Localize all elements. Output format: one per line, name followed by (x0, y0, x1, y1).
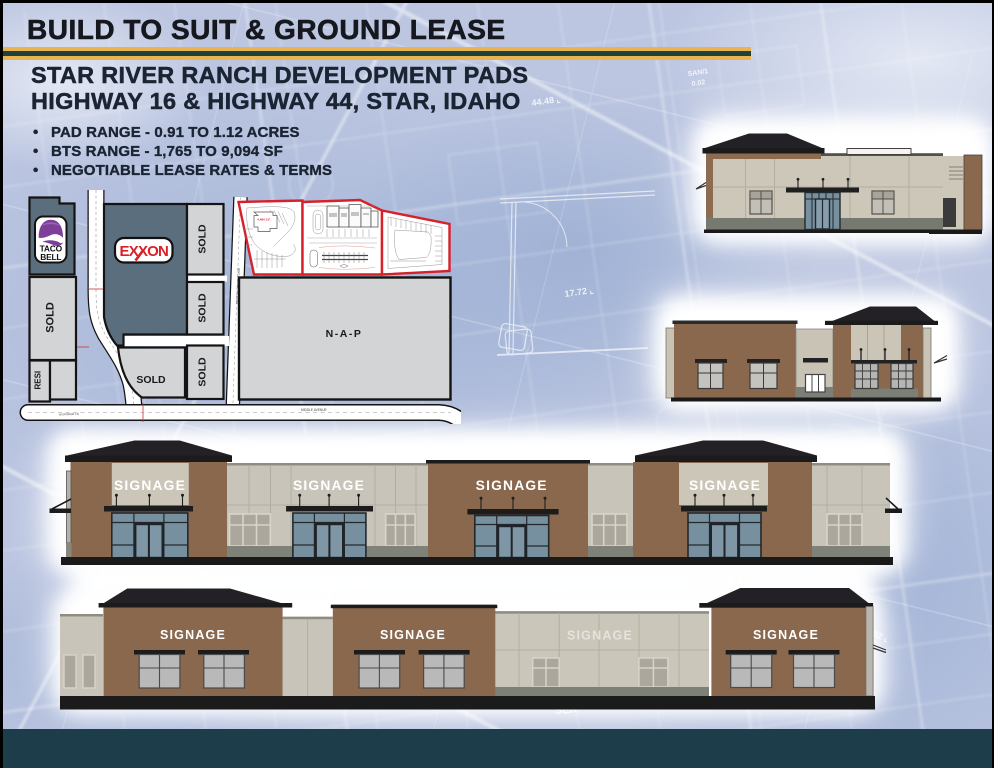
svg-text:SIGNAGE: SIGNAGE (160, 628, 226, 642)
svg-text:BELL: BELL (40, 252, 61, 262)
svg-text:W.GRANGE LN: W.GRANGE LN (59, 412, 79, 417)
svg-text:SIGNAGE: SIGNAGE (567, 629, 633, 643)
svg-text:SIGNAGE: SIGNAGE (114, 478, 186, 493)
svg-text:N-A-P: N-A-P (326, 328, 363, 340)
svg-text:SIGNAGE: SIGNAGE (380, 628, 446, 642)
svg-text:SOLD: SOLD (136, 374, 166, 386)
svg-text:SOLD: SOLD (197, 224, 209, 254)
svg-text:MIDDLE AVENUE: MIDDLE AVENUE (301, 408, 327, 412)
svg-text:SOLD: SOLD (197, 357, 209, 387)
svg-text:SOLD: SOLD (45, 302, 57, 333)
svg-text:SOLD: SOLD (197, 293, 209, 323)
svg-text:4,480 S.F.: 4,480 S.F. (257, 218, 271, 222)
svg-text:SIGNAGE: SIGNAGE (753, 628, 819, 642)
svg-text:SIGNAGE: SIGNAGE (689, 478, 761, 493)
svg-text:RESI: RESI (34, 371, 43, 390)
svg-text:SIGNAGE: SIGNAGE (293, 478, 365, 493)
svg-text:SIGNAGE: SIGNAGE (476, 478, 548, 493)
